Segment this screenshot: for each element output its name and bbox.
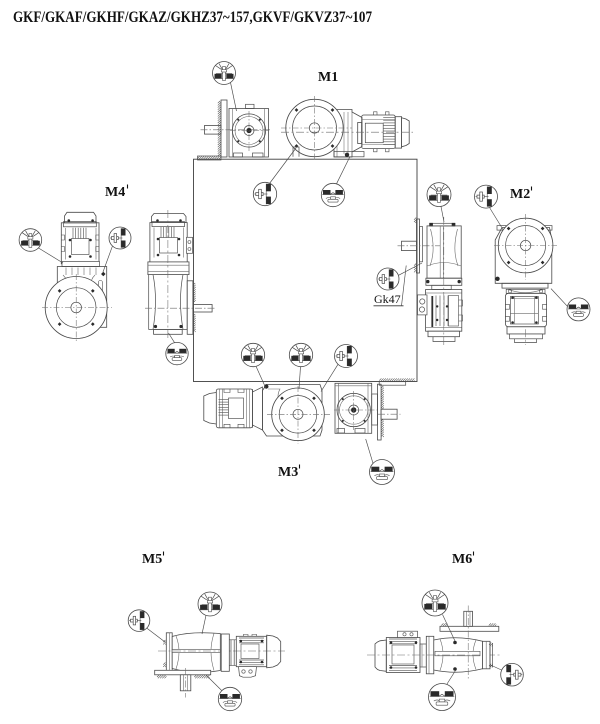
svg-text:M2: M2 — [510, 187, 530, 202]
svg-text:Gk47: Gk47 — [374, 292, 401, 306]
svg-text:M4: M4 — [105, 185, 125, 200]
svg-text:M6: M6 — [452, 552, 472, 567]
svg-text:M1: M1 — [318, 70, 338, 85]
svg-text:M3: M3 — [278, 465, 298, 480]
svg-text:M5: M5 — [142, 552, 162, 567]
svg-text:GKF/GKAF/GKHF/GKAZ/GKHZ37~157,: GKF/GKAF/GKHF/GKAZ/GKHZ37~157,GKVF/GKVZ3… — [13, 9, 372, 26]
